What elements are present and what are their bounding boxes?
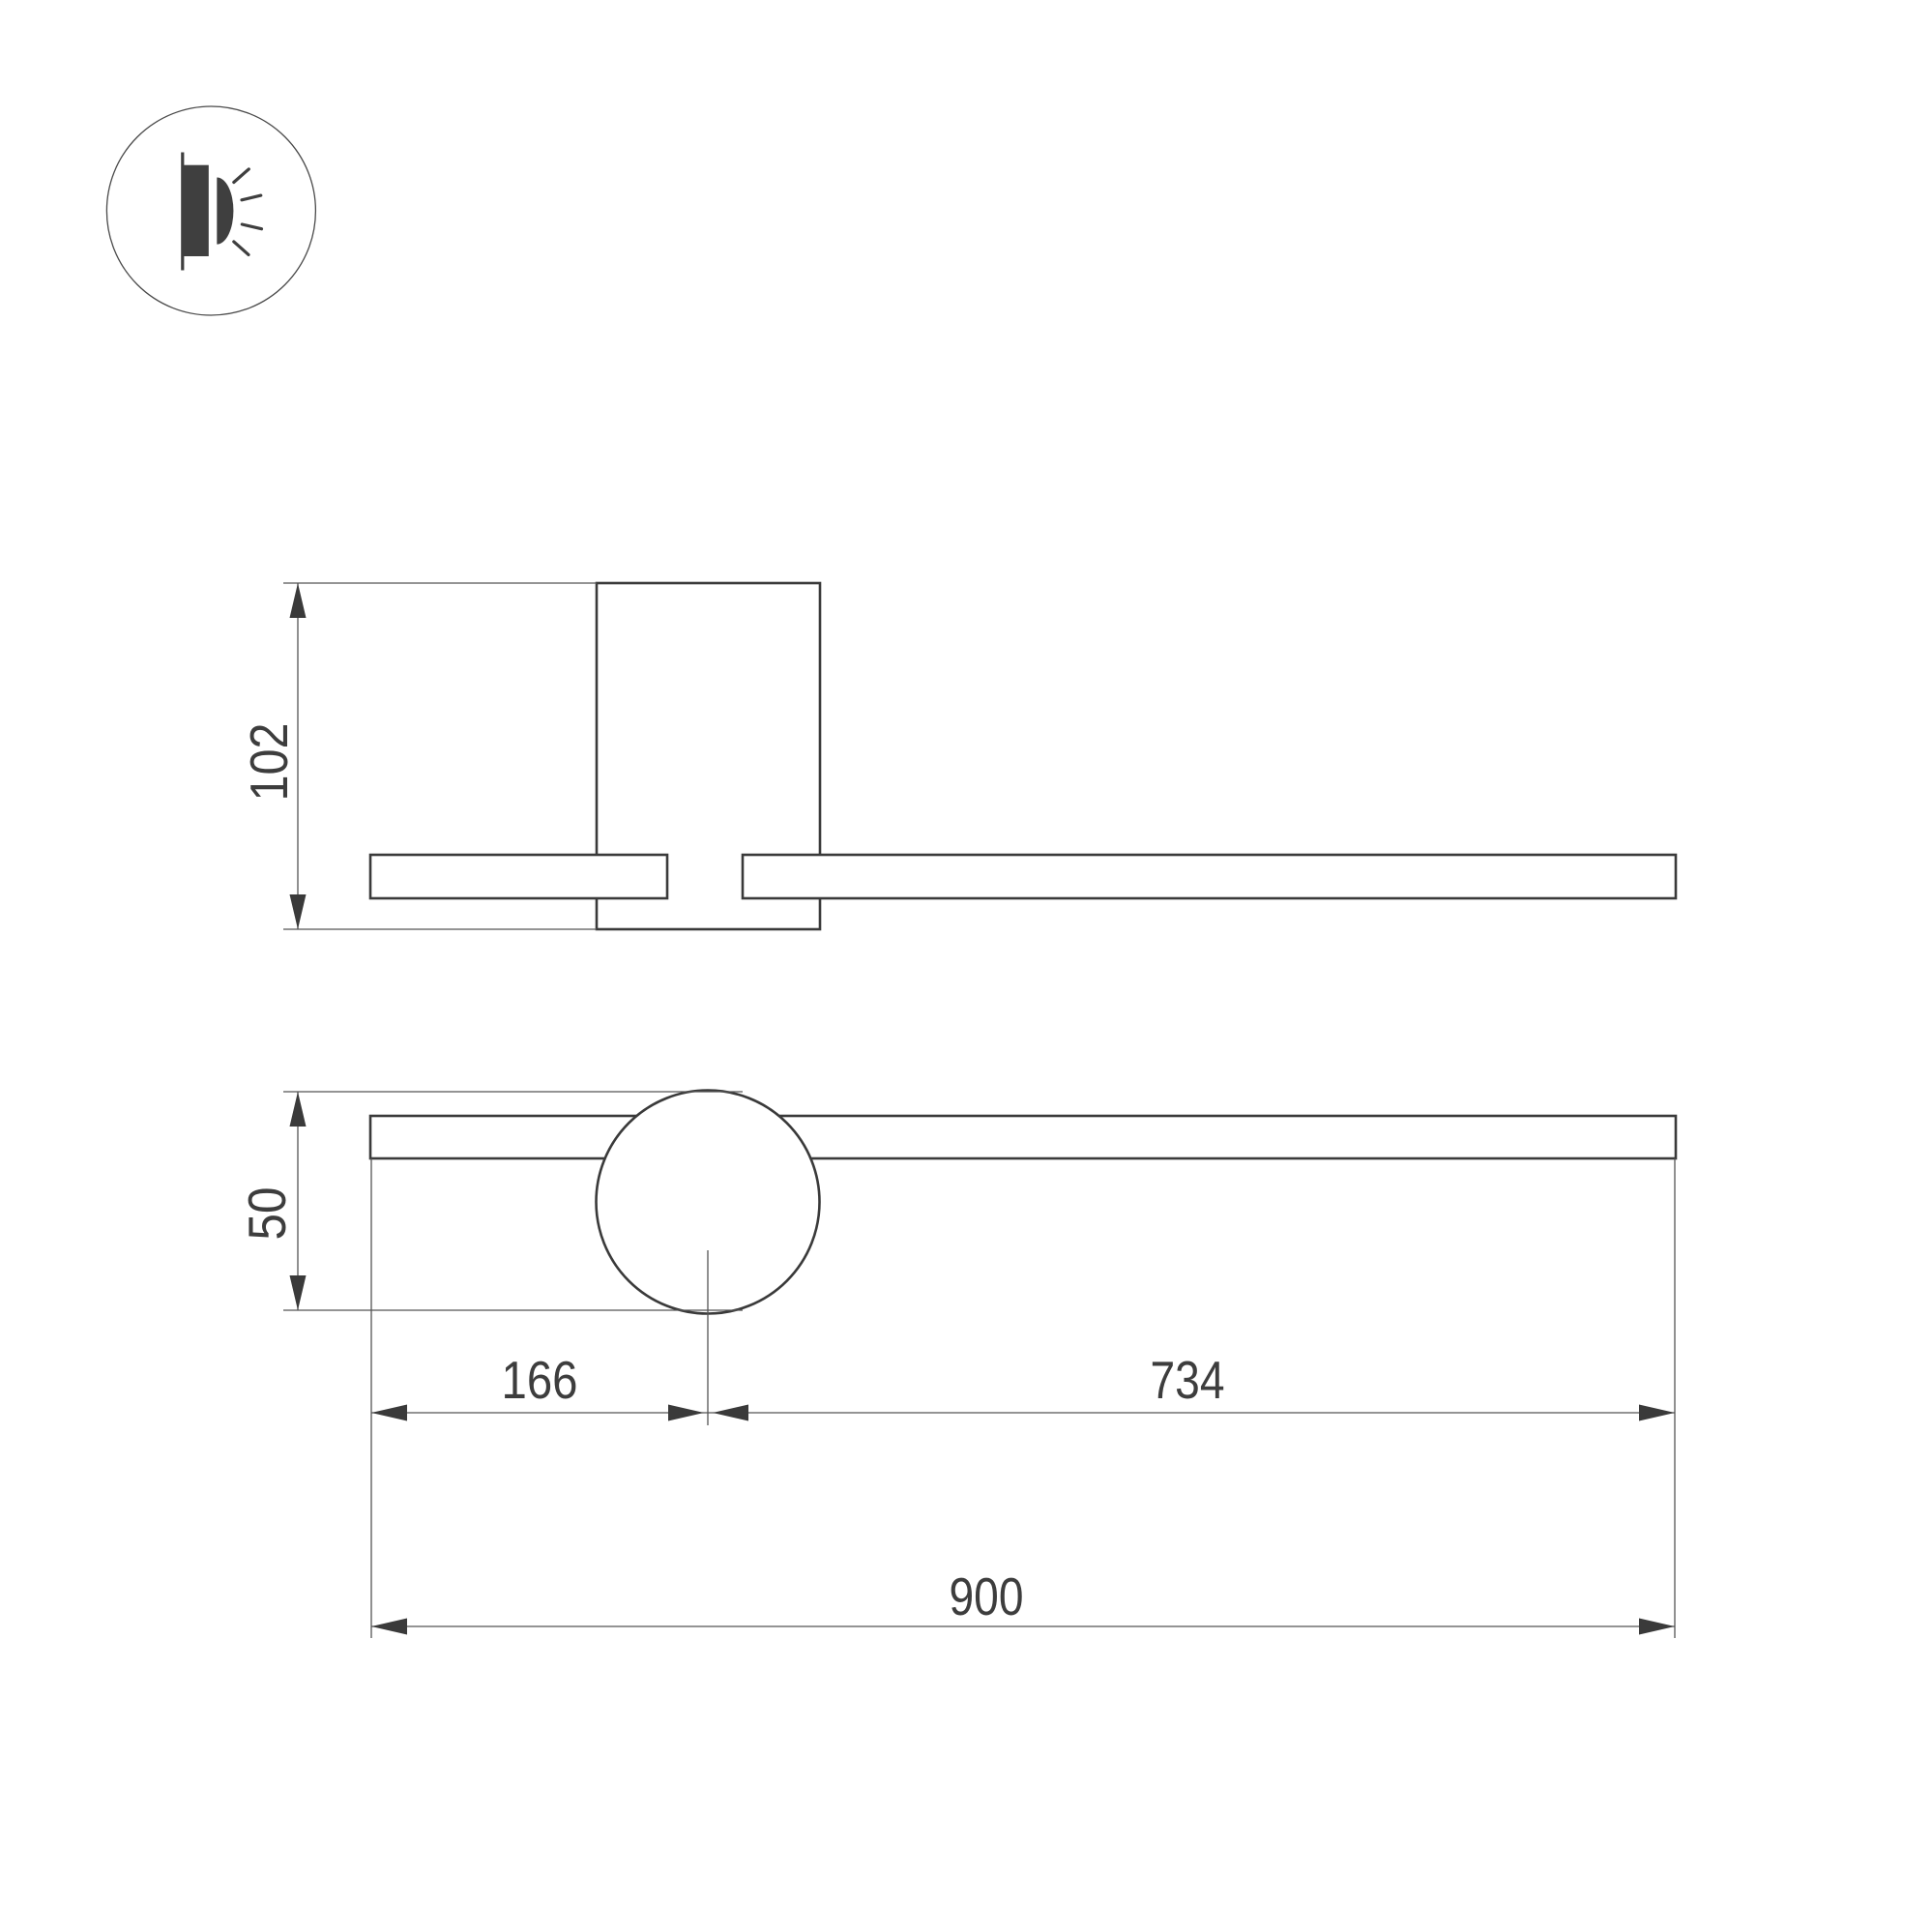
- svg-text:900: 900: [950, 1566, 1024, 1626]
- svg-text:102: 102: [239, 723, 299, 802]
- svg-text:166: 166: [502, 1350, 578, 1410]
- svg-text:50: 50: [237, 1187, 297, 1241]
- svg-text:734: 734: [1151, 1350, 1225, 1410]
